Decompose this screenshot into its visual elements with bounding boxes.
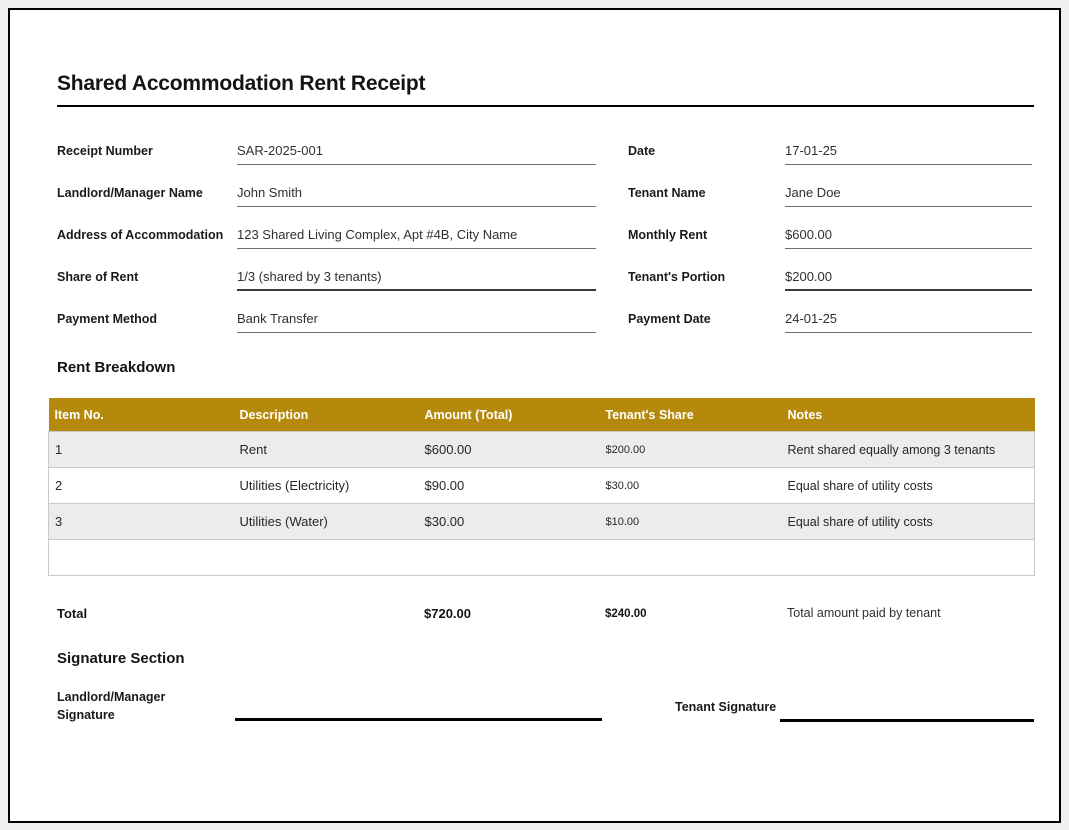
landlord-signature-line[interactable]: [235, 718, 602, 721]
cell-item-no: 1: [49, 432, 234, 468]
title-divider: [57, 105, 1034, 107]
cell-notes: Equal share of utility costs: [782, 504, 1035, 540]
field-label: Landlord/Manager Name: [57, 186, 237, 207]
cell-notes: Equal share of utility costs: [782, 468, 1035, 504]
table-row: 1 Rent $600.00 $200.00 Rent shared equal…: [49, 432, 1035, 468]
landlord-signature-label: Landlord/Manager Signature: [57, 688, 192, 724]
field-label: Date: [628, 144, 785, 165]
cell-item-no: 3: [49, 504, 234, 540]
rent-breakdown-heading: Rent Breakdown: [57, 359, 175, 376]
receipt-fields: Receipt Number SAR-2025-001 Landlord/Man…: [57, 123, 1032, 333]
column-header-amount: Amount (Total): [419, 398, 600, 432]
cell-tenants-share: $30.00: [600, 468, 782, 504]
page-title: Shared Accommodation Rent Receipt: [57, 72, 425, 96]
field-label: Address of Accommodation: [57, 228, 237, 249]
total-row: Total $720.00 $240.00 Total amount paid …: [48, 606, 1034, 626]
field-date: Date 17-01-25: [628, 123, 1032, 165]
cell-empty[interactable]: [782, 540, 1035, 576]
field-receipt-number: Receipt Number SAR-2025-001: [57, 123, 596, 165]
field-value[interactable]: $600.00: [785, 227, 1032, 249]
tenant-signature-label: Tenant Signature: [675, 698, 776, 716]
cell-description: Rent: [234, 432, 419, 468]
cell-empty[interactable]: [234, 540, 419, 576]
cell-empty[interactable]: [49, 540, 234, 576]
field-label: Payment Method: [57, 312, 237, 333]
field-address: Address of Accommodation 123 Shared Livi…: [57, 207, 596, 249]
table-row: 2 Utilities (Electricity) $90.00 $30.00 …: [49, 468, 1035, 504]
cell-tenants-share: $10.00: [600, 504, 782, 540]
tenant-signature-line[interactable]: [780, 719, 1034, 722]
field-label: Tenant Name: [628, 186, 785, 207]
field-value[interactable]: Bank Transfer: [237, 311, 596, 333]
cell-empty[interactable]: [419, 540, 600, 576]
field-payment-date: Payment Date 24-01-25: [628, 291, 1032, 333]
field-value[interactable]: 17-01-25: [785, 143, 1032, 165]
fields-left-column: Receipt Number SAR-2025-001 Landlord/Man…: [57, 123, 596, 333]
cell-empty[interactable]: [600, 540, 782, 576]
receipt-page: Shared Accommodation Rent Receipt Receip…: [8, 8, 1061, 823]
cell-amount: $30.00: [419, 504, 600, 540]
cell-tenants-share: $200.00: [600, 432, 782, 468]
table-header-row: Item No. Description Amount (Total) Tena…: [49, 398, 1035, 432]
field-value[interactable]: 123 Shared Living Complex, Apt #4B, City…: [237, 227, 596, 249]
field-value[interactable]: Jane Doe: [785, 185, 1032, 207]
field-label: Receipt Number: [57, 144, 237, 165]
fields-right-column: Date 17-01-25 Tenant Name Jane Doe Month…: [628, 123, 1032, 333]
signature-section-heading: Signature Section: [57, 650, 185, 667]
cell-amount: $90.00: [419, 468, 600, 504]
field-label: Payment Date: [628, 312, 785, 333]
field-value[interactable]: $200.00: [785, 269, 1032, 291]
field-tenant-name: Tenant Name Jane Doe: [628, 165, 1032, 207]
cell-description: Utilities (Water): [234, 504, 419, 540]
total-amount: $720.00: [424, 606, 471, 621]
field-payment-method: Payment Method Bank Transfer: [57, 291, 596, 333]
field-monthly-rent: Monthly Rent $600.00: [628, 207, 1032, 249]
field-tenants-portion: Tenant's Portion $200.00: [628, 249, 1032, 291]
field-label: Share of Rent: [57, 270, 237, 291]
column-header-item-no: Item No.: [49, 398, 234, 432]
cell-item-no: 2: [49, 468, 234, 504]
field-value[interactable]: 24-01-25: [785, 311, 1032, 333]
cell-notes: Rent shared equally among 3 tenants: [782, 432, 1035, 468]
rent-breakdown-table: Item No. Description Amount (Total) Tena…: [48, 398, 1035, 576]
cell-description: Utilities (Electricity): [234, 468, 419, 504]
total-label: Total: [57, 606, 87, 621]
column-header-description: Description: [234, 398, 419, 432]
field-value[interactable]: John Smith: [237, 185, 596, 207]
field-value[interactable]: 1/3 (shared by 3 tenants): [237, 269, 596, 291]
field-label: Tenant's Portion: [628, 270, 785, 291]
field-share-of-rent: Share of Rent 1/3 (shared by 3 tenants): [57, 249, 596, 291]
total-tenants-share: $240.00: [605, 608, 647, 620]
field-label: Monthly Rent: [628, 228, 785, 249]
table-row: 3 Utilities (Water) $30.00 $10.00 Equal …: [49, 504, 1035, 540]
field-value[interactable]: SAR-2025-001: [237, 143, 596, 165]
table-row-empty: [49, 540, 1035, 576]
cell-amount: $600.00: [419, 432, 600, 468]
field-landlord-name: Landlord/Manager Name John Smith: [57, 165, 596, 207]
column-header-notes: Notes: [782, 398, 1035, 432]
column-header-tenants-share: Tenant's Share: [600, 398, 782, 432]
total-note: Total amount paid by tenant: [787, 606, 941, 620]
